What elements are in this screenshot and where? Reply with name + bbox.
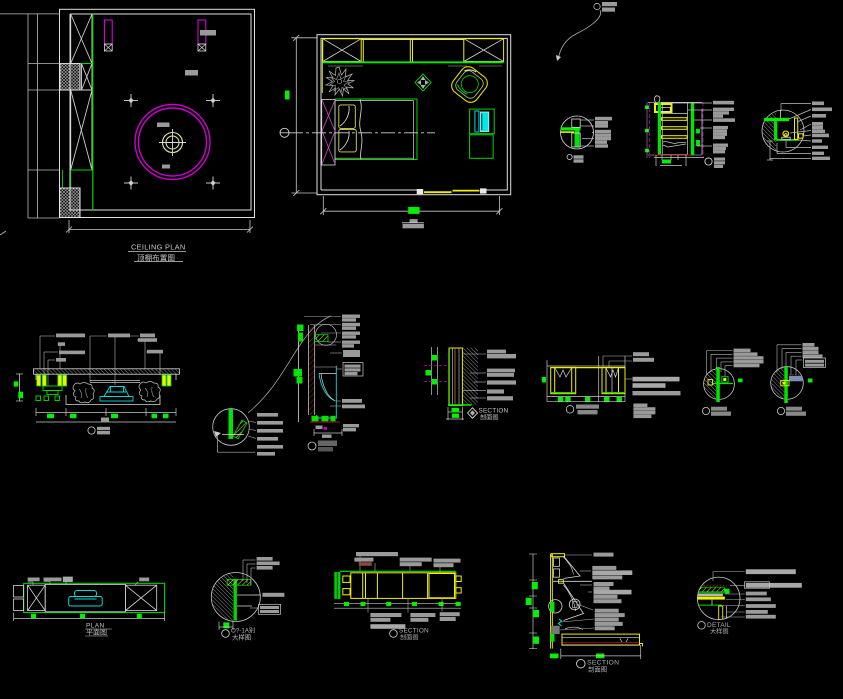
svg-text:O?-1A别: O?-1A别 xyxy=(231,627,255,635)
svg-text:剖面图: 剖面图 xyxy=(400,634,419,642)
svg-text:CEILING PLAN: CEILING PLAN xyxy=(131,243,186,252)
svg-text:SECTION: SECTION xyxy=(479,408,509,415)
svg-text:顶棚布置图: 顶棚布置图 xyxy=(137,253,175,263)
svg-text:平面图: 平面图 xyxy=(86,629,107,637)
svg-text:SECTION: SECTION xyxy=(587,660,619,667)
svg-text:SECTION: SECTION xyxy=(399,628,429,635)
svg-text:大样图: 大样图 xyxy=(710,628,729,636)
svg-text:大样图: 大样图 xyxy=(232,633,251,642)
svg-text:剖面图: 剖面图 xyxy=(480,414,499,422)
svg-text:PLAN: PLAN xyxy=(86,623,105,630)
svg-text:剖面图: 剖面图 xyxy=(588,665,607,674)
